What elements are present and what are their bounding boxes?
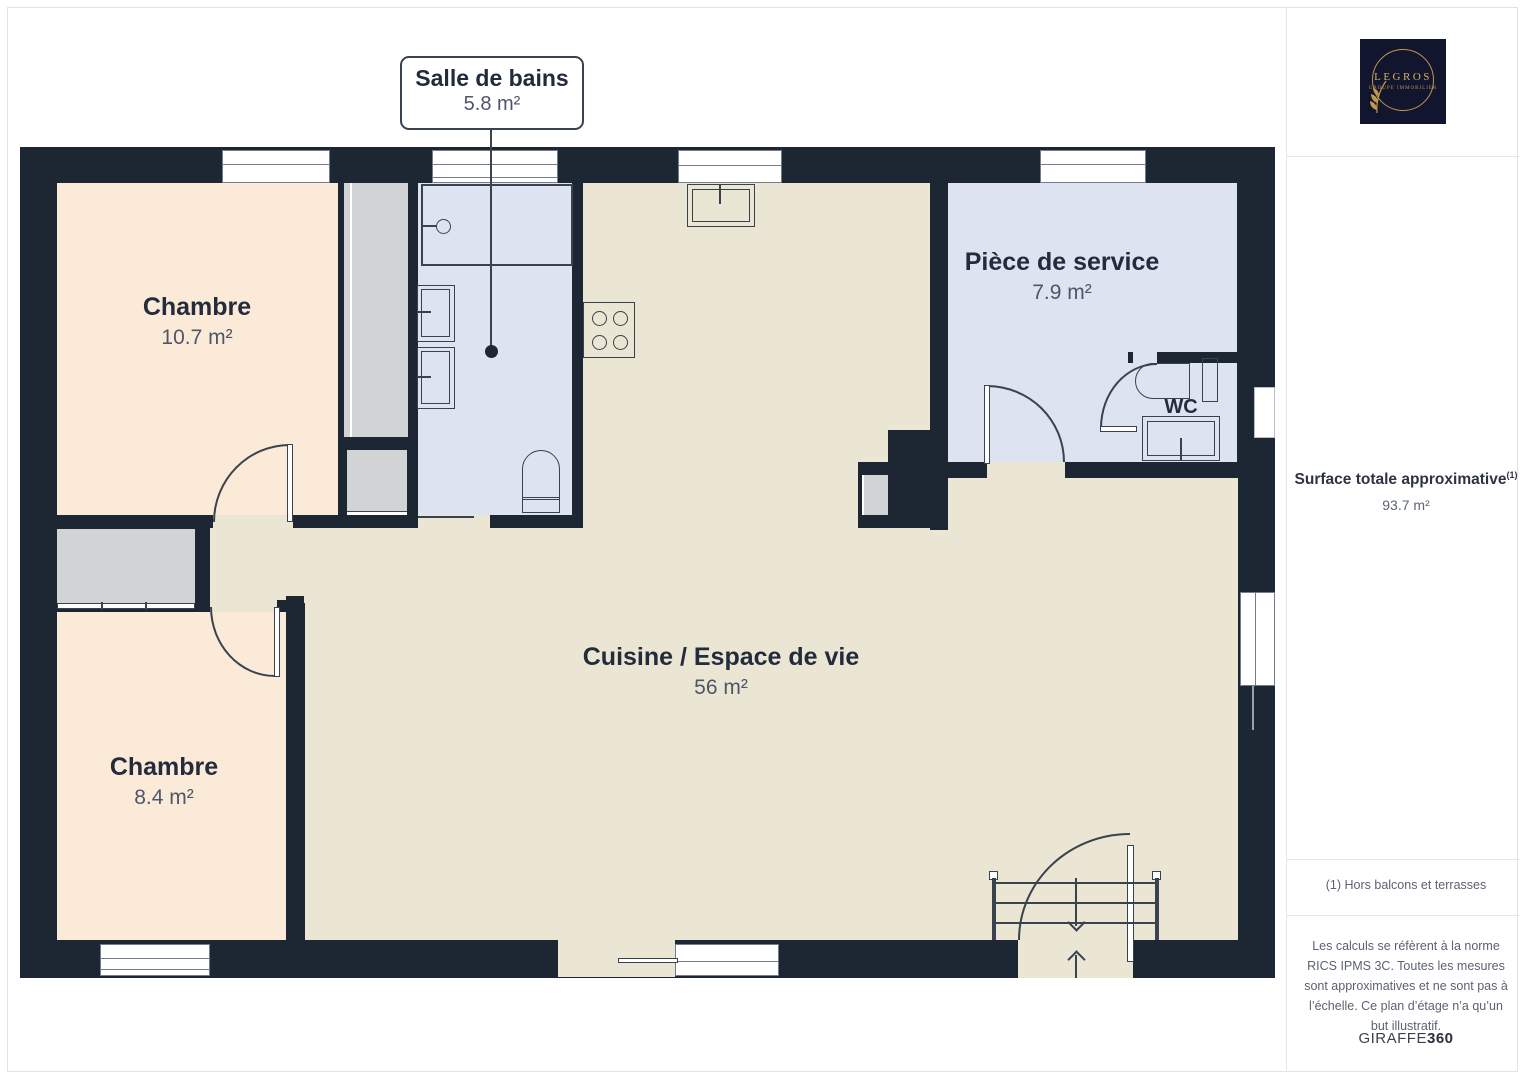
bath-cabinet bbox=[417, 285, 455, 342]
wc-door-gap bbox=[1133, 352, 1157, 363]
door-leaf-piece-de-service bbox=[984, 385, 990, 464]
door-leaf-wc bbox=[1100, 426, 1137, 432]
wall-niche bbox=[1254, 387, 1275, 438]
surface-title: Surface totale approximative(1) bbox=[1286, 470, 1526, 489]
toilet-cistern bbox=[522, 497, 560, 513]
wc-toilet-bowl bbox=[1135, 363, 1190, 399]
burner bbox=[592, 311, 607, 326]
hallway bbox=[210, 527, 583, 603]
giraffe-text: GIRAFFE bbox=[1358, 1030, 1427, 1047]
wall-segment bbox=[1065, 462, 1128, 478]
burner bbox=[592, 335, 607, 350]
wardrobe-track-line bbox=[350, 183, 352, 437]
stair-rail bbox=[992, 878, 996, 940]
sidebar-divider bbox=[1287, 859, 1519, 860]
wardrobe-2-doors bbox=[57, 603, 195, 609]
room-area-cuisine: 56 m² bbox=[694, 676, 748, 700]
door-threshold bbox=[987, 462, 1065, 478]
stove bbox=[583, 302, 635, 358]
wall-segment bbox=[1128, 462, 1237, 478]
wardrobe-chambre-1 bbox=[344, 183, 408, 437]
burner bbox=[613, 311, 628, 326]
disclaimer: Les calculs se réfèrent à la norme RICS … bbox=[1303, 936, 1509, 1036]
wheat-icon bbox=[1366, 79, 1390, 115]
window bbox=[100, 944, 210, 976]
wall-segment bbox=[293, 515, 418, 528]
callout-salle-de-bains: Salle de bains 5.8 m² bbox=[400, 56, 584, 130]
footnote: (1) Hors balcons et terrasses bbox=[1286, 878, 1526, 892]
door-leaf-chambre-1 bbox=[287, 444, 293, 522]
giraffe360-brand: GIRAFFE360 bbox=[1286, 1030, 1526, 1047]
giraffe-360-text: 360 bbox=[1427, 1030, 1454, 1047]
callout-title: Salle de bains bbox=[402, 65, 582, 92]
stair-rail bbox=[1155, 878, 1159, 940]
french-door-leaf bbox=[1252, 686, 1254, 730]
callout-anchor-dot bbox=[485, 345, 498, 358]
room-area-chambre-2: 8.4 m² bbox=[134, 786, 194, 810]
wc-toilet-cistern bbox=[1202, 358, 1218, 402]
wall-segment bbox=[57, 515, 213, 528]
room-label-chambre-1: Chambre bbox=[143, 293, 251, 322]
wall-segment bbox=[195, 527, 210, 612]
sliding-door-leaf bbox=[618, 958, 678, 963]
window bbox=[222, 150, 330, 183]
door-leaf-salle-de-bains bbox=[418, 516, 474, 518]
bath-cabinet bbox=[417, 347, 455, 409]
wall-segment bbox=[948, 462, 987, 478]
room-cuisine-left bbox=[305, 603, 583, 940]
surface-value: 93.7 m² bbox=[1286, 497, 1526, 513]
room-label-wc: WC bbox=[1164, 396, 1197, 419]
sidebar-divider bbox=[1287, 156, 1519, 157]
room-label-piece-de-service: Pièce de service bbox=[965, 248, 1160, 277]
radiator-line bbox=[862, 475, 864, 515]
wall-segment bbox=[338, 450, 347, 528]
door-leaf-chambre-2 bbox=[274, 607, 280, 677]
info-sidebar: LEGROS GROUPE IMMOBILIER Surface totale … bbox=[1286, 0, 1526, 1080]
kitchen-tap bbox=[719, 184, 721, 204]
room-label-chambre-2: Chambre bbox=[110, 753, 218, 782]
wall-segment bbox=[490, 515, 583, 528]
window bbox=[1040, 150, 1146, 183]
room-cuisine-fill bbox=[930, 530, 948, 940]
wardrobe-door-tick bbox=[145, 602, 147, 610]
room-label-cuisine: Cuisine / Espace de vie bbox=[583, 643, 860, 672]
sidebar-divider bbox=[1287, 915, 1519, 916]
surface-footnote-marker: (1) bbox=[1506, 470, 1517, 480]
door-leaf-entrance bbox=[1127, 845, 1134, 962]
wall-segment bbox=[338, 437, 418, 450]
floor-plan-page: Chambre 10.7 m² Pièce de service 7.9 m² … bbox=[0, 0, 1526, 1080]
wall-segment bbox=[572, 183, 583, 528]
wardrobe-door-tick bbox=[101, 602, 103, 610]
room-area-piece-de-service: 7.9 m² bbox=[1032, 281, 1092, 305]
room-cuisine-main bbox=[583, 183, 930, 940]
surface-title-text: Surface totale approximative bbox=[1295, 471, 1507, 488]
agency-logo: LEGROS GROUPE IMMOBILIER bbox=[1360, 39, 1446, 124]
wc-tap bbox=[1180, 438, 1182, 461]
window bbox=[678, 150, 782, 183]
cabinet-handle bbox=[417, 311, 431, 313]
callout-area: 5.8 m² bbox=[402, 93, 582, 116]
french-door bbox=[1240, 592, 1275, 686]
wardrobe-chambre-2 bbox=[57, 529, 195, 603]
sidebar-divider-vertical bbox=[1286, 8, 1287, 1072]
burner bbox=[613, 335, 628, 350]
window bbox=[675, 944, 779, 976]
cabinet-handle bbox=[417, 376, 431, 378]
toilet-bowl bbox=[522, 450, 560, 500]
floor-plan: Chambre 10.7 m² Pièce de service 7.9 m² … bbox=[0, 0, 1286, 1080]
wall-segment bbox=[286, 596, 304, 940]
room-area-chambre-1: 10.7 m² bbox=[161, 326, 232, 350]
kitchen-sink bbox=[687, 184, 755, 227]
closet-small bbox=[347, 450, 407, 513]
surface-summary: Surface totale approximative(1) 93.7 m² bbox=[1286, 470, 1526, 513]
wall-pillar bbox=[888, 430, 948, 528]
radiator bbox=[862, 475, 888, 515]
window bbox=[432, 150, 558, 183]
shower-drain bbox=[436, 219, 451, 234]
shower-arm bbox=[421, 225, 437, 227]
callout-leader-line bbox=[490, 130, 492, 351]
